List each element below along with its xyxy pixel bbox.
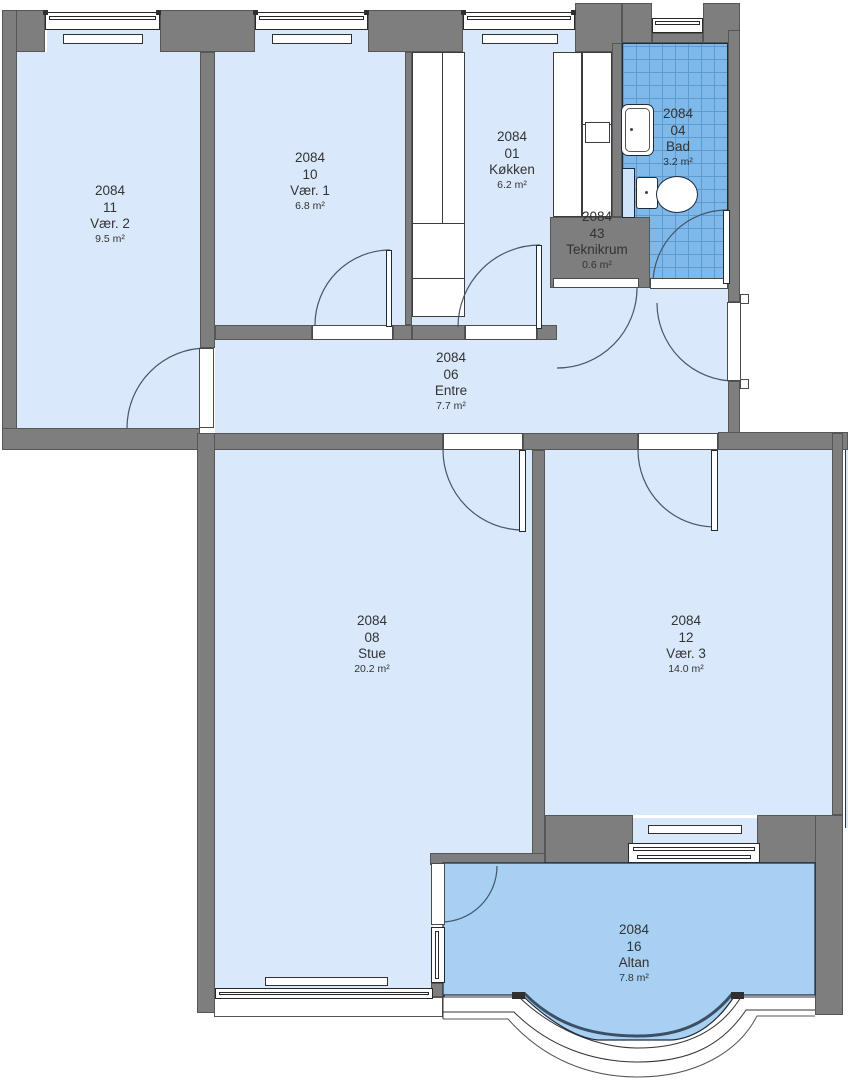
room-number: 43 [566,226,628,243]
window-bathroom [652,18,703,33]
room-area: 7.7 m² [435,400,467,413]
door-frame-altan [431,863,445,925]
kitchen-counter-right [553,52,582,217]
floor-plan: 2084 11 Vær. 2 9.5 m² 2084 10 Vær. 1 6.8… [0,0,848,1080]
room-area: 14.0 m² [666,663,706,676]
room-label-bad: 2084 04 Bad 3.2 m² [663,106,693,169]
room-label-stue: 2084 08 Stue 20.2 m² [354,613,390,676]
room-area: 20.2 m² [354,663,390,676]
room-name: Stue [354,646,390,663]
wall-segment [815,815,843,1015]
wall-segment [393,325,412,340]
door-frame-vaer3 [638,433,718,450]
room-number: 01 [489,146,535,163]
room-floor-entre [215,340,728,433]
door-leaf-vaer3 [711,450,718,531]
room-name: Bad [663,139,693,156]
room-unit: 2084 [354,613,390,630]
wall-segment [622,3,652,43]
room-unit: 2084 [666,613,706,630]
room-label-vaer3: 2084 12 Vær. 3 14.0 m² [666,613,706,676]
window [255,12,368,30]
room-number: 16 [619,939,650,956]
room-area: 0.6 m² [566,259,628,272]
room-floor-stue-lower [215,857,433,988]
window-jamb [253,10,258,15]
wall-segment [200,52,215,348]
room-area: 6.2 m² [489,179,535,192]
room-label-teknikrum: 2084 43 Teknikrum 0.6 m² [566,209,628,272]
railing-corner-cap [512,992,525,999]
room-number: 08 [354,630,390,647]
room-name: Entre [435,383,467,400]
window [45,12,160,30]
room-name: Altan [619,955,650,972]
door-leaf-koekken [536,245,542,329]
room-label-koekken: 2084 01 Køkken 6.2 m² [489,129,535,192]
wall-segment [523,433,638,450]
wall-segment [368,10,463,52]
door-frame-bad [650,278,728,289]
toilet-flush-icon [645,191,648,194]
door-leaf-stue [519,450,526,532]
wall-segment [652,33,703,43]
wall-segment [405,52,412,325]
wall-exterior-left [2,10,17,450]
sink [621,104,654,156]
balcony-edge-band [524,993,733,1036]
room-label-vaer2: 2084 11 Vær. 2 9.5 m² [90,183,130,246]
balcony-railing [443,1016,815,1077]
door-leaf-vaer1 [386,250,392,327]
door-leaf-bad [723,210,730,284]
window-vaer3 [628,843,760,863]
room-label-vaer1: 2084 10 Vær. 1 6.8 m² [290,150,330,213]
radiator [482,34,558,44]
window-stue [215,988,433,999]
toilet-bowl [656,176,698,213]
window-jamb [156,10,161,15]
room-unit: 2084 [290,150,330,167]
wall-segment [532,450,545,855]
entrance-door [727,302,741,381]
balcony-railing [443,1010,815,1062]
door-frame-stue [443,433,523,450]
exterior-ledge [214,997,443,1017]
room-name: Teknikrum [566,242,628,259]
window-jamb [571,10,576,15]
railing-corner-cap [731,992,744,999]
entrance-door-jamb [740,294,749,304]
sink-drain-icon [630,128,633,131]
wall-segment [431,983,445,997]
room-unit: 2084 [435,350,467,367]
wall-segment [2,428,200,450]
room-number: 11 [90,200,130,217]
wall-segment [215,325,312,340]
wall-segment [160,10,255,52]
radiator [648,825,742,834]
wall-segment [718,432,848,450]
entrance-door-jamb [740,379,749,389]
room-number: 04 [663,123,693,140]
room-area: 3.2 m² [663,156,693,169]
room-number: 06 [435,367,467,384]
radiator [63,34,143,44]
radiator [265,977,388,986]
window-jamb [364,10,369,15]
window-jamb [43,10,48,15]
room-area: 6.8 m² [290,200,330,213]
room-name: Vær. 2 [90,216,130,233]
door-frame-teknikrum [553,278,639,288]
room-unit: 2084 [663,106,693,123]
room-unit: 2084 [566,209,628,226]
room-name: Køkken [489,162,535,179]
balcony-railing [443,997,815,1048]
door-frame-koekken [465,325,537,340]
wall-segment [832,433,843,815]
room-number: 10 [290,167,330,184]
room-area: 9.5 m² [90,233,130,246]
window-jamb [461,10,466,15]
door-frame-vaer2 [199,348,214,428]
room-unit: 2084 [489,129,535,146]
room-floor-entre-extension [543,288,728,340]
wall-segment [545,815,633,863]
room-name: Vær. 3 [666,646,706,663]
room-name: Vær. 1 [290,183,330,200]
wall-segment [430,853,545,865]
wall-exterior-stue-left [197,433,215,1013]
room-unit: 2084 [90,183,130,200]
door-swing-altan [441,866,497,922]
wall-segment [197,433,443,450]
room-area: 7.8 m² [619,972,650,985]
room-label-entre: 2084 06 Entre 7.7 m² [435,350,467,413]
window [463,12,575,30]
door-frame-vaer1 [312,325,393,340]
kitchen-cabinet-left [412,52,465,317]
room-unit: 2084 [619,922,650,939]
kitchen-appliance-box [585,122,610,143]
radiator [272,34,352,44]
window-altan [431,927,445,983]
room-label-altan: 2084 16 Altan 7.8 m² [619,922,650,985]
wall-segment [412,325,465,340]
room-number: 12 [666,630,706,647]
